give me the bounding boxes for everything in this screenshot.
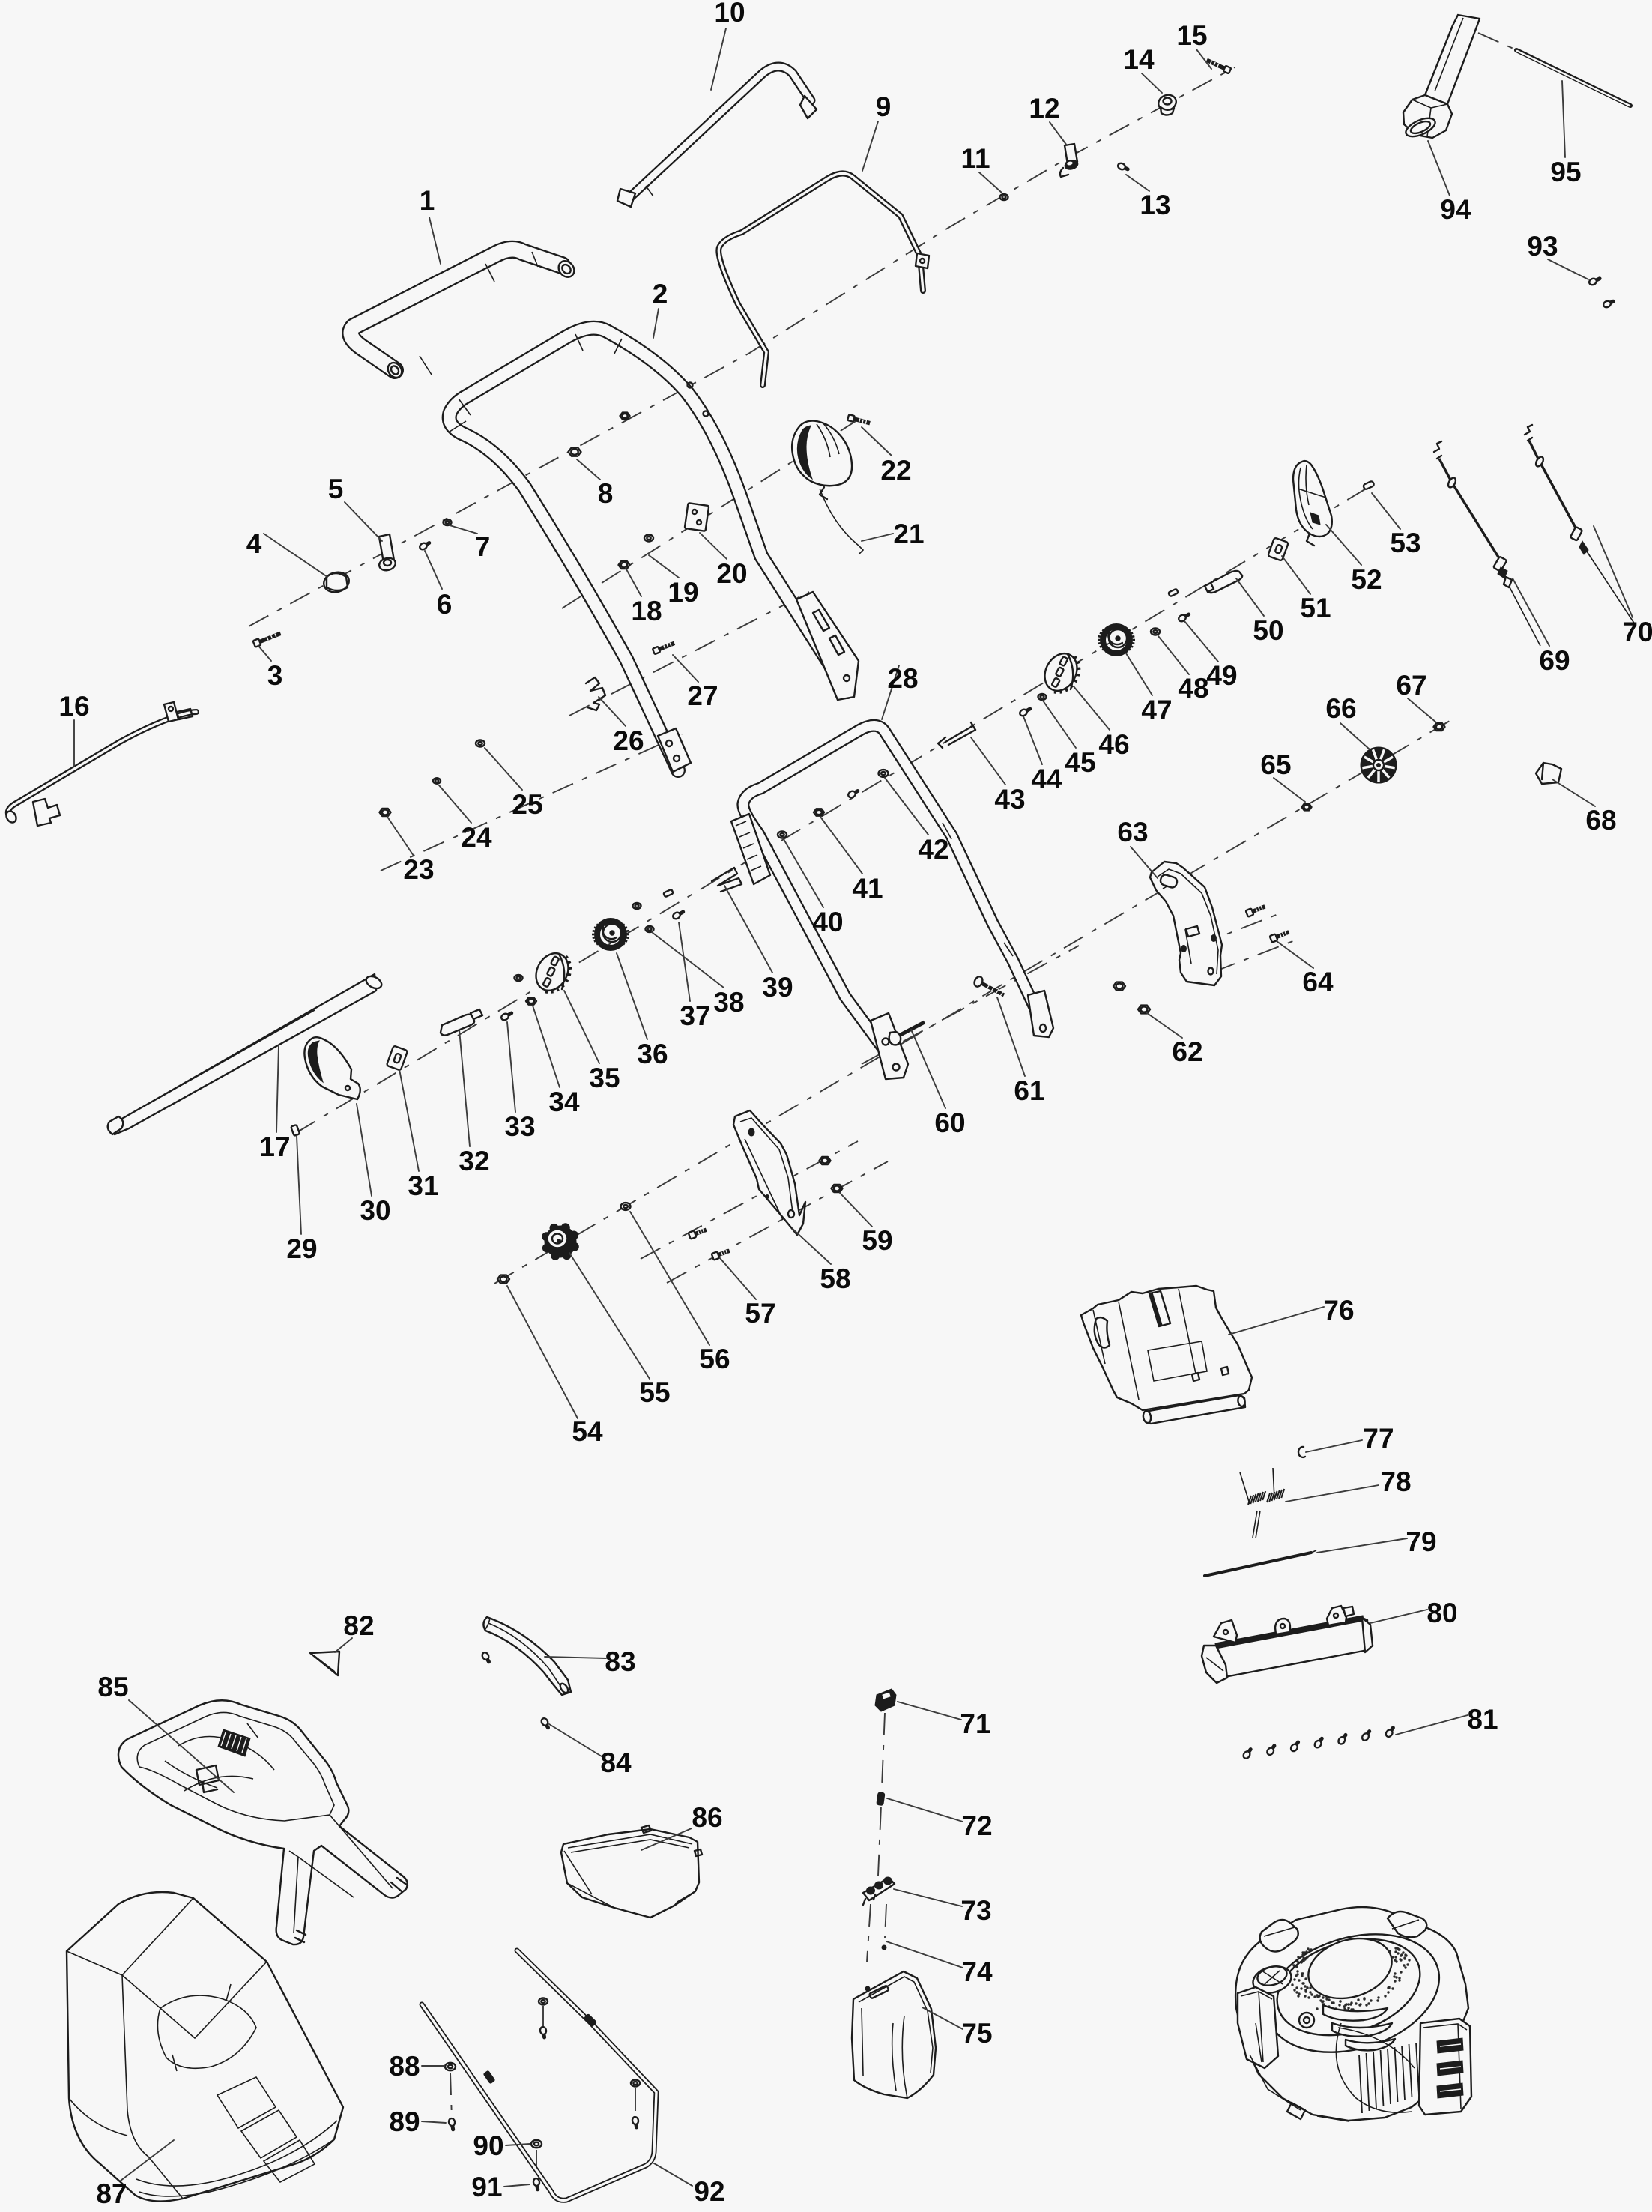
- svg-text:18: 18: [631, 596, 662, 626]
- svg-text:67: 67: [1396, 670, 1426, 701]
- svg-text:44: 44: [1031, 764, 1062, 794]
- svg-text:70: 70: [1622, 617, 1652, 647]
- svg-text:17: 17: [259, 1131, 290, 1162]
- svg-text:87: 87: [96, 2178, 127, 2209]
- svg-text:51: 51: [1300, 593, 1331, 623]
- svg-text:33: 33: [504, 1111, 535, 1142]
- svg-text:5: 5: [328, 474, 344, 504]
- svg-text:36: 36: [637, 1039, 668, 1069]
- svg-text:22: 22: [880, 455, 911, 486]
- svg-text:35: 35: [589, 1063, 620, 1093]
- svg-text:20: 20: [716, 558, 747, 589]
- svg-text:76: 76: [1323, 1295, 1354, 1326]
- svg-text:59: 59: [862, 1225, 892, 1256]
- svg-text:85: 85: [97, 1672, 128, 1702]
- svg-text:54: 54: [572, 1416, 603, 1447]
- svg-text:92: 92: [694, 2176, 724, 2207]
- svg-text:45: 45: [1065, 747, 1095, 778]
- svg-text:90: 90: [473, 2130, 503, 2161]
- svg-text:62: 62: [1172, 1036, 1202, 1067]
- svg-text:19: 19: [668, 577, 698, 608]
- svg-text:82: 82: [343, 1610, 374, 1641]
- svg-text:9: 9: [876, 91, 892, 122]
- svg-text:10: 10: [714, 0, 745, 28]
- svg-text:86: 86: [692, 1802, 722, 1833]
- svg-text:29: 29: [286, 1233, 317, 1264]
- svg-text:74: 74: [961, 1956, 993, 1987]
- svg-text:55: 55: [639, 1377, 670, 1408]
- svg-text:1: 1: [420, 185, 435, 216]
- svg-text:28: 28: [887, 663, 918, 694]
- svg-text:30: 30: [360, 1195, 390, 1226]
- svg-text:32: 32: [459, 1146, 489, 1176]
- svg-text:15: 15: [1176, 20, 1207, 51]
- svg-text:6: 6: [437, 589, 453, 620]
- svg-text:93: 93: [1527, 231, 1558, 262]
- svg-text:75: 75: [961, 2018, 992, 2049]
- svg-text:48: 48: [1178, 673, 1208, 704]
- svg-text:4: 4: [246, 528, 262, 559]
- svg-text:60: 60: [934, 1107, 965, 1138]
- svg-text:49: 49: [1206, 660, 1237, 691]
- svg-text:3: 3: [267, 660, 283, 691]
- svg-text:65: 65: [1260, 749, 1291, 780]
- svg-text:58: 58: [820, 1263, 850, 1294]
- svg-text:27: 27: [687, 680, 718, 711]
- svg-text:8: 8: [598, 478, 614, 509]
- svg-text:95: 95: [1550, 157, 1581, 187]
- svg-text:69: 69: [1539, 645, 1570, 676]
- svg-text:26: 26: [613, 725, 644, 756]
- svg-text:39: 39: [762, 972, 793, 1003]
- svg-text:50: 50: [1253, 615, 1283, 646]
- svg-text:81: 81: [1467, 1704, 1498, 1735]
- svg-text:66: 66: [1325, 693, 1356, 724]
- svg-text:47: 47: [1141, 695, 1172, 725]
- svg-text:72: 72: [961, 1810, 992, 1841]
- svg-text:11: 11: [960, 143, 990, 174]
- svg-text:80: 80: [1426, 1598, 1457, 1628]
- svg-text:31: 31: [408, 1170, 438, 1201]
- svg-text:91: 91: [471, 2172, 502, 2202]
- svg-text:89: 89: [389, 2106, 420, 2137]
- svg-text:14: 14: [1123, 44, 1155, 75]
- svg-text:40: 40: [812, 907, 843, 937]
- svg-text:13: 13: [1140, 190, 1170, 220]
- svg-text:38: 38: [713, 987, 744, 1018]
- svg-text:61: 61: [1014, 1075, 1044, 1106]
- svg-text:34: 34: [548, 1087, 580, 1117]
- svg-text:23: 23: [403, 854, 434, 885]
- svg-text:42: 42: [918, 834, 948, 865]
- svg-text:43: 43: [994, 784, 1025, 815]
- svg-text:46: 46: [1098, 729, 1129, 760]
- svg-text:56: 56: [699, 1344, 730, 1374]
- svg-text:78: 78: [1380, 1466, 1411, 1497]
- svg-text:77: 77: [1363, 1423, 1394, 1454]
- svg-text:73: 73: [960, 1895, 991, 1926]
- svg-text:7: 7: [475, 531, 491, 562]
- svg-text:53: 53: [1390, 528, 1420, 558]
- svg-text:71: 71: [960, 1708, 990, 1739]
- svg-text:2: 2: [653, 279, 668, 309]
- svg-text:84: 84: [600, 1747, 632, 1778]
- svg-text:63: 63: [1117, 817, 1148, 847]
- svg-text:37: 37: [680, 1000, 710, 1031]
- svg-text:52: 52: [1351, 564, 1382, 595]
- svg-text:79: 79: [1406, 1526, 1436, 1557]
- svg-text:94: 94: [1440, 194, 1471, 225]
- svg-text:41: 41: [852, 873, 883, 904]
- svg-text:16: 16: [58, 691, 89, 722]
- svg-text:83: 83: [605, 1646, 635, 1677]
- svg-text:64: 64: [1302, 967, 1334, 997]
- svg-text:68: 68: [1585, 805, 1616, 835]
- svg-text:12: 12: [1029, 93, 1059, 124]
- svg-text:57: 57: [745, 1298, 775, 1329]
- svg-text:24: 24: [461, 822, 492, 853]
- svg-text:21: 21: [893, 519, 924, 549]
- svg-text:25: 25: [512, 789, 542, 820]
- svg-text:88: 88: [389, 2051, 420, 2082]
